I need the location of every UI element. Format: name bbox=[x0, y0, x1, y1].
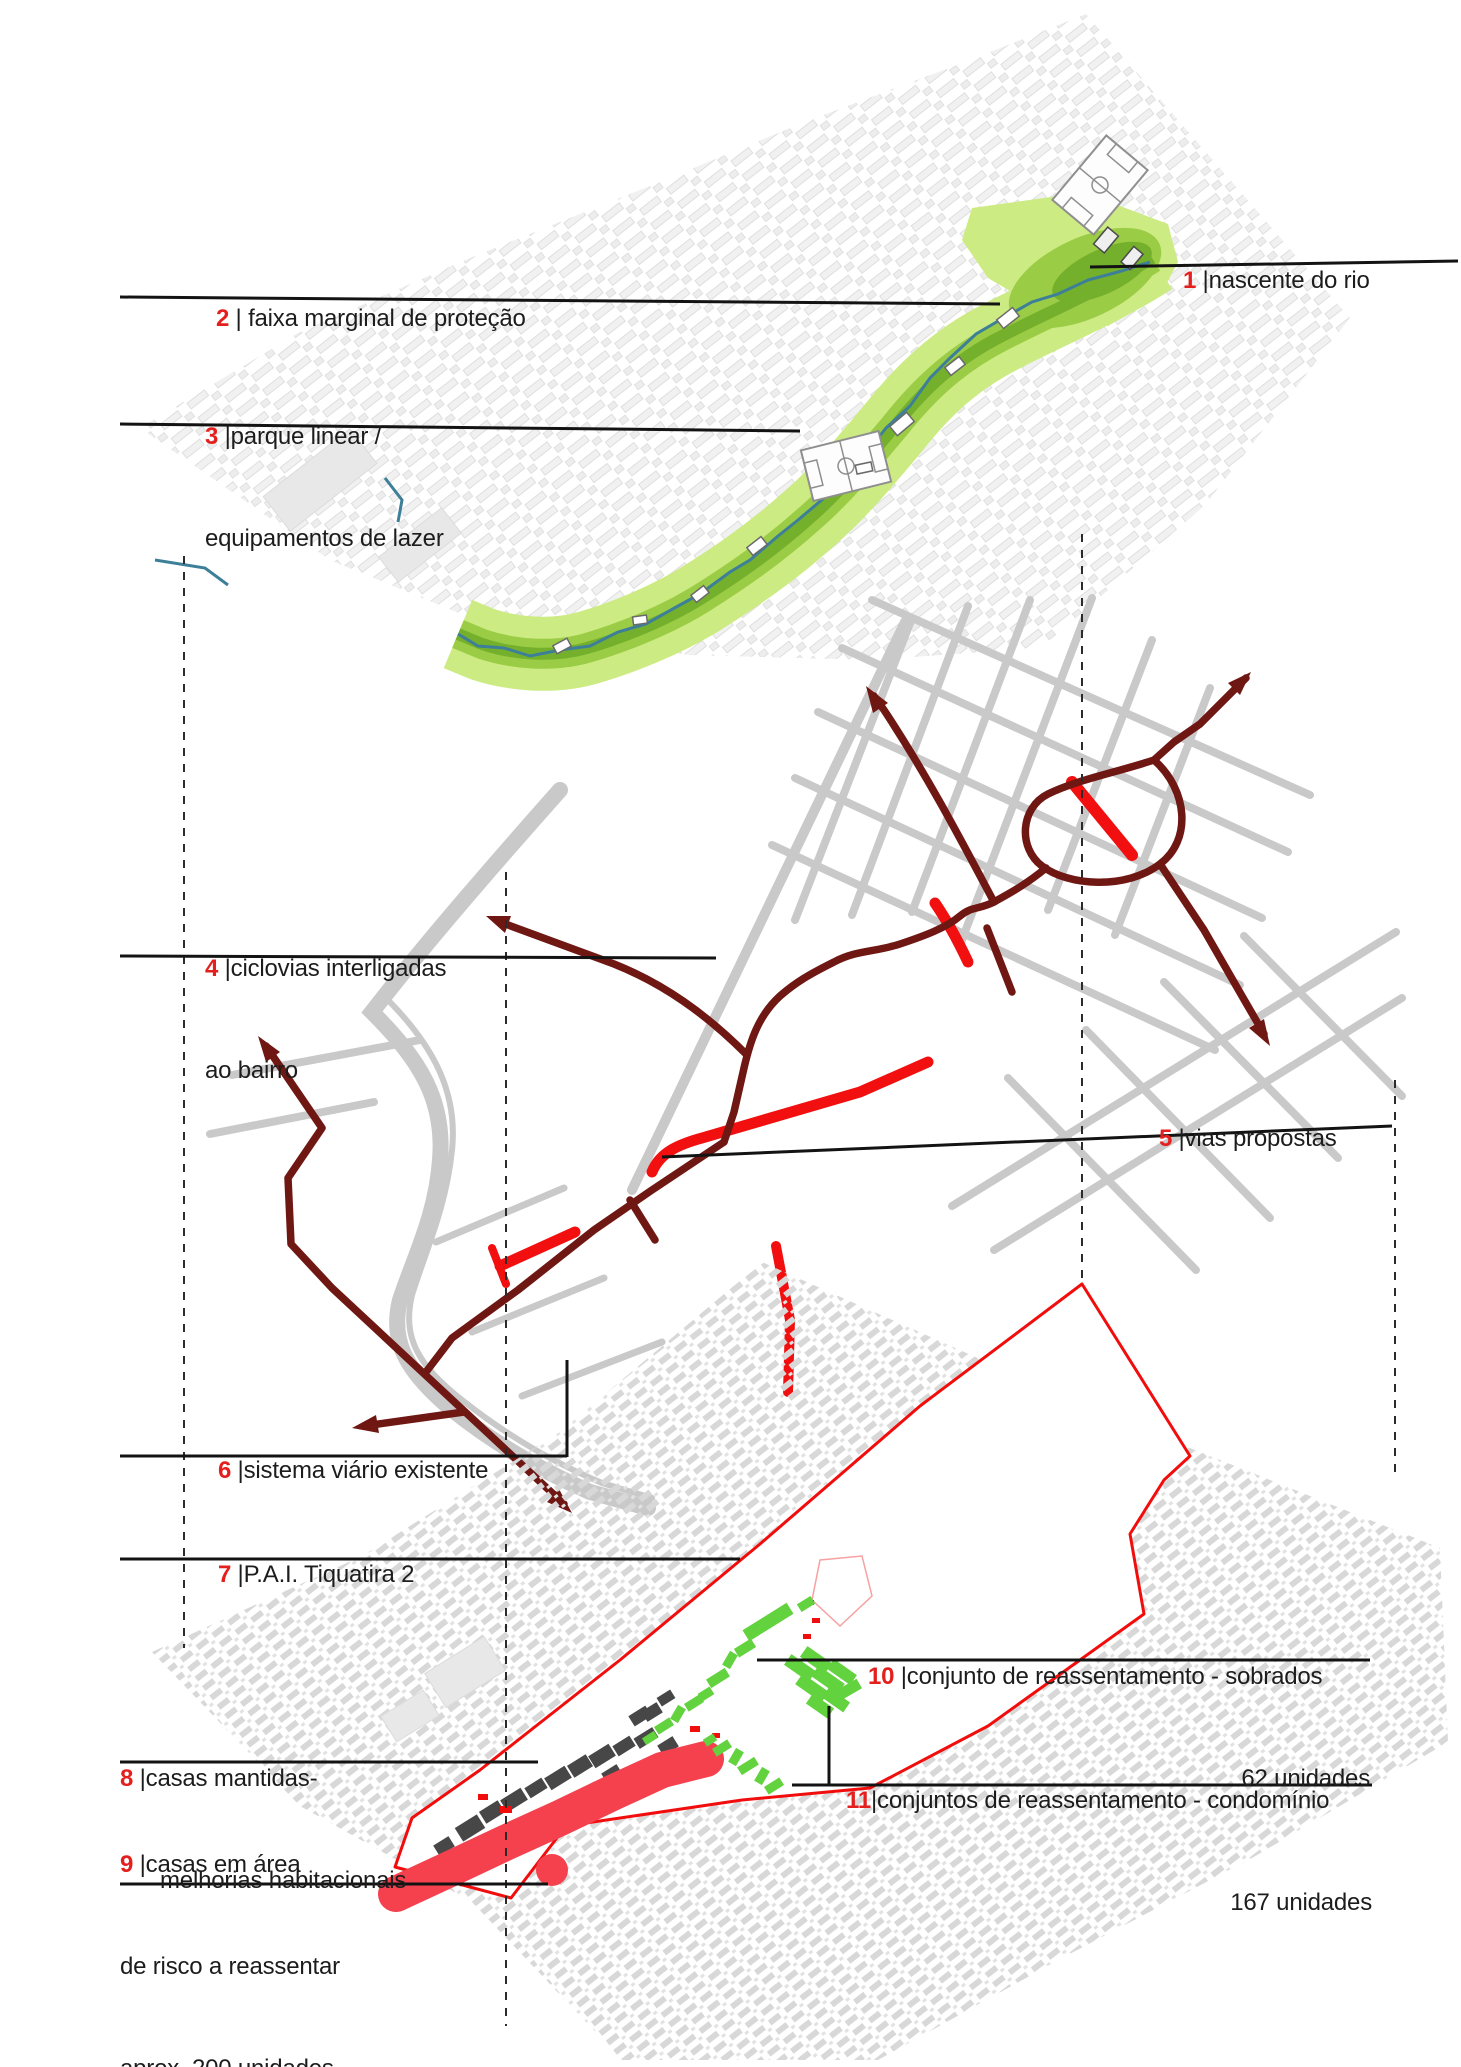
label-number: 11 bbox=[846, 1787, 871, 1814]
exploded-axonometric-diagram: 1 |nascente do rio 2 | faixa marginal de… bbox=[0, 0, 1461, 2067]
label-reassentamento-condominio: 11|conjuntos de reassentamento - condomí… bbox=[846, 1716, 1372, 1954]
label-parque-linear: 3 |parque linear / equipamentos de lazer bbox=[205, 352, 444, 590]
label-nascente-do-rio: 1 |nascente do rio bbox=[1170, 230, 1370, 298]
label-pai-tiquatira: 7 |P.A.I. Tiquatira 2 bbox=[205, 1524, 414, 1592]
label-number: 9 bbox=[120, 1851, 133, 1878]
label-number: 5 bbox=[1159, 1125, 1172, 1152]
label-faixa-marginal: 2 | faixa marginal de proteção bbox=[203, 268, 526, 336]
label-number: 1 bbox=[1183, 267, 1196, 294]
label-casas-risco: 9 |casas em área de risco a reassentar a… bbox=[120, 1780, 340, 2067]
label-sistema-viario: 6 |sistema viário existente bbox=[205, 1420, 488, 1488]
arrowhead-icon bbox=[486, 916, 511, 933]
label-number: 6 bbox=[218, 1457, 231, 1484]
label-number: 4 bbox=[205, 955, 218, 982]
label-ciclovias: 4 |ciclovias interligadas ao bairro bbox=[205, 884, 446, 1122]
risk-area-blob bbox=[536, 1854, 568, 1886]
label-number: 3 bbox=[205, 423, 218, 450]
label-number: 2 bbox=[216, 305, 229, 332]
label-vias-propostas: 5 |vias propostas bbox=[1146, 1088, 1337, 1156]
label-number: 10 bbox=[868, 1663, 894, 1690]
label-number: 7 bbox=[218, 1561, 231, 1588]
